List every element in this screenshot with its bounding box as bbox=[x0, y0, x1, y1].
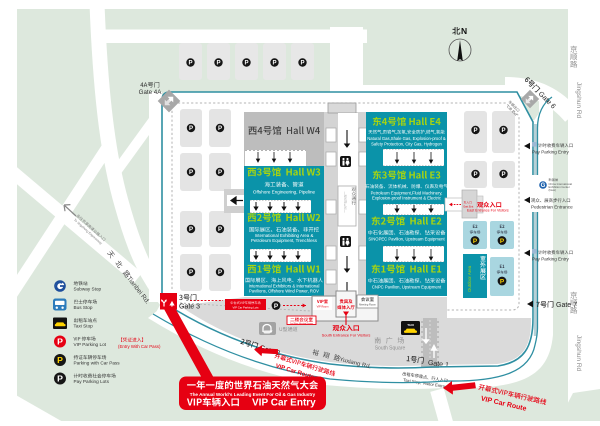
svg-text:Natural Gas,Shale Gas, Explosi: Natural Gas,Shale Gas, Explosion-proof & bbox=[367, 136, 446, 141]
svg-text:P: P bbox=[189, 269, 193, 276]
svg-text:Taxi Stop: Taxi Stop bbox=[74, 323, 94, 328]
svg-text:N: N bbox=[461, 26, 467, 36]
svg-text:P: P bbox=[57, 374, 63, 384]
svg-text:P: P bbox=[188, 60, 192, 67]
svg-text:P: P bbox=[218, 169, 222, 176]
svg-text:P: P bbox=[189, 226, 193, 233]
svg-text:P: P bbox=[218, 269, 222, 276]
svg-text:Meeting Room: Meeting Room bbox=[359, 303, 376, 307]
svg-text:East Entrance For Visitors: East Entrance For Visitors bbox=[467, 209, 509, 213]
svg-text:South Entrance For Visitors: South Entrance For Visitors bbox=[322, 333, 371, 338]
svg-text:P: P bbox=[189, 125, 193, 132]
svg-text:Pay Parking Lots: Pay Parking Lots bbox=[74, 379, 110, 384]
svg-text:Jingshun Rd: Jingshun Rd bbox=[575, 335, 582, 372]
svg-text:Pedestrian Entrance: Pedestrian Entrance bbox=[531, 205, 573, 210]
svg-text:P: P bbox=[272, 60, 276, 67]
svg-text:VIP Car Parking Lots: VIP Car Parking Lots bbox=[232, 306, 259, 310]
svg-text:Explosion-proof Instrument & E: Explosion-proof Instrument & Electric bbox=[372, 196, 441, 201]
svg-text:Gate 3: Gate 3 bbox=[179, 304, 200, 311]
svg-text:Pay Parking Entry: Pay Parking Entry bbox=[532, 257, 569, 262]
svg-text:The Annual World's Leading Eve: The Annual World's Leading Event For Oil… bbox=[190, 392, 316, 397]
svg-text:Bus Stop: Bus Stop bbox=[74, 305, 93, 310]
svg-text:P: P bbox=[57, 337, 63, 347]
svg-text:VIP Car Entry: VIP Car Entry bbox=[252, 398, 316, 409]
svg-text:P: P bbox=[274, 303, 279, 310]
svg-text:P: P bbox=[473, 127, 477, 134]
svg-text:P: P bbox=[500, 278, 505, 285]
svg-text:Pay Parking Entry: Pay Parking Entry bbox=[532, 150, 569, 155]
svg-text:Parking with Car Pass: Parking with Car Pass bbox=[74, 360, 121, 365]
svg-text:P: P bbox=[57, 355, 63, 365]
svg-text:P: P bbox=[218, 125, 222, 132]
svg-text:G: G bbox=[541, 183, 546, 189]
svg-text:TAXI: TAXI bbox=[407, 323, 414, 327]
svg-text:(New): (New) bbox=[549, 188, 557, 192]
svg-text:Safety Protection, City Gas, H: Safety Protection, City Gas, Hydrogen bbox=[371, 142, 442, 147]
svg-text:P: P bbox=[216, 60, 220, 67]
svg-text:P: P bbox=[300, 60, 304, 67]
svg-text:Offshore Engineering, Pipeline: Offshore Engineering, Pipeline bbox=[253, 190, 316, 195]
svg-text:Petroleum Equipment, Trenchles: Petroleum Equipment, Trenchless bbox=[251, 238, 318, 243]
svg-text:SINOPEC Pavilion, Upstream Equ: SINOPEC Pavilion, Upstream Equipment bbox=[368, 237, 445, 242]
svg-text:Jingshun Rd: Jingshun Rd bbox=[575, 82, 582, 119]
svg-text:P: P bbox=[473, 171, 477, 178]
svg-text:P: P bbox=[473, 238, 478, 245]
svg-text:P: P bbox=[500, 238, 505, 245]
svg-text:P: P bbox=[218, 226, 222, 233]
svg-text:Pavilions, Offshore Wind Power: Pavilions, Offshore Wind Power, ROV bbox=[249, 289, 319, 294]
svg-text:P: P bbox=[501, 171, 505, 178]
svg-text:P: P bbox=[501, 127, 505, 134]
svg-text:VIP Parking Lot: VIP Parking Lot bbox=[74, 342, 107, 347]
svg-text:CNPC Pavilion, Upstream Equipm: CNPC Pavilion, Upstream Equipment bbox=[372, 285, 442, 290]
svg-text:P: P bbox=[244, 60, 248, 67]
svg-text:VIP Room: VIP Room bbox=[317, 305, 329, 309]
svg-text:2nd Floor Meeting Rooms: 2nd Floor Meeting Rooms bbox=[290, 322, 313, 325]
svg-text:P: P bbox=[189, 169, 193, 176]
svg-text:Subway Stop: Subway Stop bbox=[74, 286, 102, 291]
svg-text:Gate 4A: Gate 4A bbox=[139, 89, 163, 96]
svg-text:(Entry With Car Pass): (Entry With Car Pass) bbox=[118, 344, 161, 349]
svg-text:South Square: South Square bbox=[375, 346, 406, 352]
svg-text:Outdoor Area: Outdoor Area bbox=[467, 265, 472, 292]
